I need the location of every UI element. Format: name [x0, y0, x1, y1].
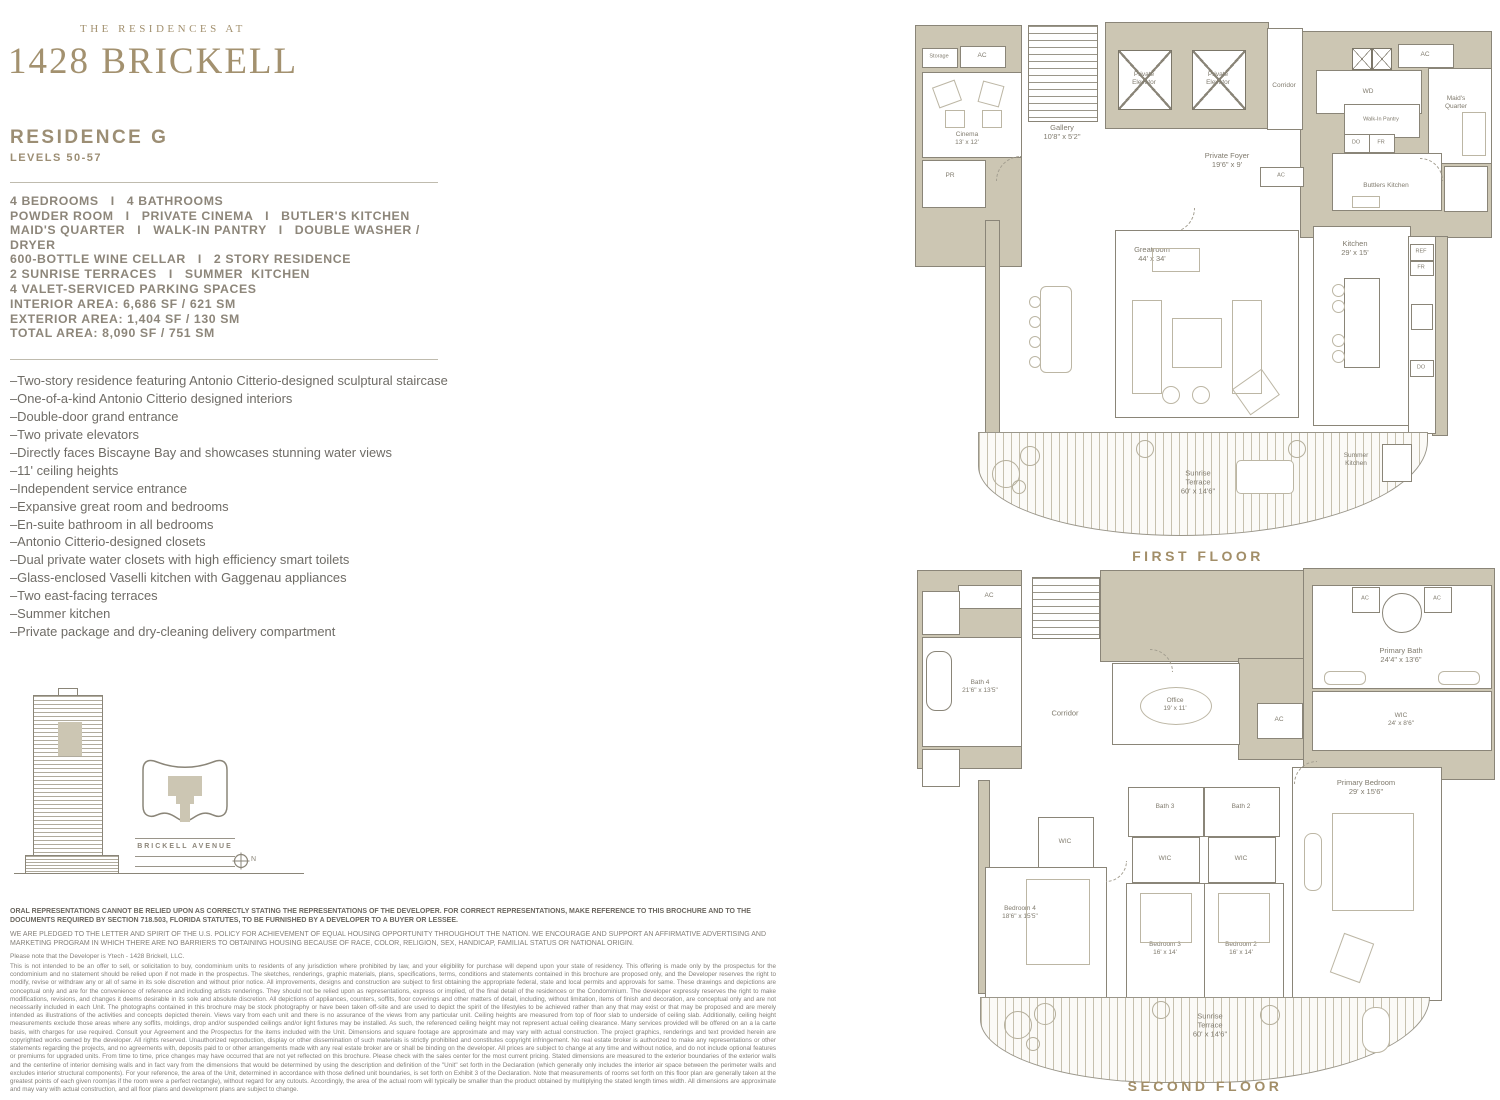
plant-icon — [1152, 1001, 1170, 1019]
label-terrace: Sunrise Terrace 60' x 14'6" — [1181, 469, 1215, 496]
room-powder — [922, 160, 986, 208]
building-podium — [25, 855, 119, 874]
label-terrace-2: Sunrise Terrace 60' x 14'6" — [1193, 1012, 1227, 1039]
site-key-plan — [135, 752, 235, 832]
disclaimer-fair-housing: WE ARE PLEDGED TO THE LETTER AND SPIRIT … — [10, 930, 776, 948]
sink-outline — [1324, 671, 1366, 685]
label-fr2: FR — [1417, 265, 1424, 272]
label-corridor: Corridor — [1051, 709, 1078, 718]
door-arc — [1294, 761, 1317, 784]
first-floor-plan: Storage AC Cinema 13' x 12' PR Gallery 1… — [900, 8, 1496, 564]
levels-subtitle: LEVELS 50-57 — [10, 152, 102, 164]
plant-icon — [1012, 480, 1026, 494]
street-line — [135, 838, 235, 839]
summary-line: POWDER ROOM I PRIVATE CINEMA I BUTLER'S … — [10, 209, 460, 224]
street-label: BRICKELL AVENUE — [135, 843, 235, 850]
stove-outline — [1352, 196, 1380, 208]
feature-item: –Antonio Citterio-designed closets — [10, 533, 462, 551]
outdoor-table-outline — [1236, 460, 1294, 494]
label-elevator-2: Private Elevator — [1206, 71, 1230, 87]
stool-outline — [1332, 334, 1345, 347]
plant-icon — [1288, 440, 1306, 458]
feature-item: –Double-door grand entrance — [10, 408, 462, 426]
label-wic-bedroom2: WIC — [1235, 855, 1248, 863]
staircase — [1028, 25, 1098, 122]
side-table-outline — [1192, 386, 1210, 404]
label-ac: AC — [984, 592, 993, 600]
label-bath2: Bath 2 — [1232, 803, 1251, 811]
plant-icon — [1136, 440, 1154, 458]
label-do2: DO — [1417, 365, 1425, 372]
door-arc — [1106, 861, 1127, 882]
label-bath4: Bath 4 21'6" x 13'5" — [962, 679, 998, 695]
feature-list: –Two-story residence featuring Antonio C… — [10, 372, 462, 641]
wall-block — [1100, 570, 1317, 662]
room-wc — [922, 591, 960, 635]
divider — [10, 182, 438, 183]
feature-item: –Dual private water closets with high ef… — [10, 551, 462, 569]
interior-area: INTERIOR AREA: 6,686 SF / 621 SM — [10, 297, 460, 312]
label-wic-bedroom3: WIC — [1159, 855, 1172, 863]
building-elevation — [33, 695, 103, 856]
bed-outline — [1218, 893, 1270, 943]
coffee-table-outline — [1172, 318, 1222, 368]
bed-outline — [1026, 879, 1090, 965]
label-ac: AC — [977, 52, 986, 60]
label-ac: AC — [1277, 173, 1285, 180]
area-summary: INTERIOR AREA: 6,686 SF / 621 SM EXTERIO… — [10, 297, 460, 341]
label-primary-bath: Primary Bath 24'4" x 13'6" — [1379, 646, 1422, 664]
feature-item: –Private package and dry-cleaning delive… — [10, 623, 462, 641]
staircase — [1032, 577, 1100, 639]
feature-item: –Two-story residence featuring Antonio C… — [10, 372, 462, 390]
feature-item: –Glass-enclosed Vaselli kitchen with Gag… — [10, 569, 462, 587]
disclaimer-body: This is not intended to be an offer to s… — [10, 963, 776, 1095]
tub-outline — [926, 651, 952, 711]
summary-line: 4 BEDROOMS I 4 BATHROOMS — [10, 194, 460, 209]
label-kitchen: Kitchen 29' x 15' — [1341, 239, 1368, 257]
label-summer-kitchen: Summer Kitchen — [1344, 452, 1369, 468]
label-gallery: Gallery 10'8" x 5'2" — [1044, 123, 1081, 141]
label-office: Office 19' x 11' — [1163, 697, 1186, 713]
disclaimer-oral: ORAL REPRESENTATIONS CANNOT BE RELIED UP… — [10, 907, 776, 925]
chair-outline — [1029, 316, 1041, 328]
feature-item: –Two east-facing terraces — [10, 587, 462, 605]
label-cinema: Cinema 13' x 12' — [955, 131, 979, 147]
bed-outline — [1332, 813, 1414, 911]
stool-outline — [1332, 350, 1345, 363]
furniture-outline — [982, 110, 1002, 128]
label-pantry: Walk-In Pantry — [1363, 117, 1399, 124]
room-bath3 — [1128, 787, 1204, 837]
feature-item: –Directly faces Biscayne Bay and showcas… — [10, 444, 462, 462]
label-ac: AC — [1361, 596, 1369, 603]
chair-outline — [1029, 356, 1041, 368]
feature-item: –Independent service entrance — [10, 480, 462, 498]
room-wc — [922, 749, 960, 787]
plant-icon — [1004, 1011, 1032, 1039]
label-do: DO — [1352, 140, 1360, 147]
ground-line — [14, 873, 304, 874]
room-maids-bath — [1444, 166, 1488, 212]
exterior-area: EXTERIOR AREA: 1,404 SF / 130 SM — [10, 312, 460, 327]
label-laundry: WD — [1363, 88, 1374, 96]
room-bath2 — [1204, 787, 1280, 837]
stool-outline — [1332, 300, 1345, 313]
label-ac: AC — [1420, 51, 1429, 59]
label-bedroom2: Bedroom 2 16' x 14' — [1225, 941, 1257, 957]
dryer-icon — [1372, 48, 1392, 70]
feature-item: –11' ceiling heights — [10, 462, 462, 480]
label-bath3: Bath 3 — [1156, 803, 1175, 811]
plant-icon — [1034, 1003, 1056, 1025]
label-bedroom3: Bedroom 3 16' x 14' — [1149, 941, 1181, 957]
label-ref: REF — [1416, 249, 1427, 256]
residence-summary: 4 BEDROOMS I 4 BATHROOMS POWDER ROOM I P… — [10, 194, 460, 296]
plant-icon — [1260, 1005, 1280, 1025]
plant-icon — [1026, 1037, 1040, 1051]
room-corridor — [1267, 28, 1303, 130]
label-butlers-kitchen: Buttlers Kitchen — [1363, 182, 1409, 190]
wall-block — [985, 220, 1000, 436]
oven-outline — [1411, 304, 1433, 330]
console-outline — [1152, 248, 1200, 272]
residence-highlight — [58, 722, 82, 756]
label-private-foyer: Private Foyer 19'6" x 9' — [1205, 151, 1250, 169]
bed-outline — [1140, 893, 1192, 943]
compass-north-label: N — [251, 856, 256, 863]
disclaimer-developer: Please note that the Developer is Ytech … — [10, 953, 776, 961]
side-table-outline — [1162, 386, 1180, 404]
bed-outline — [1462, 112, 1486, 156]
summary-line: MAID'S QUARTER I WALK-IN PANTRY I DOUBLE… — [10, 223, 460, 252]
label-ac: AC — [1274, 716, 1283, 724]
label-ac: AC — [1433, 596, 1441, 603]
label-primary-bedroom: Primary Bedroom 29' x 15'6" — [1337, 778, 1395, 796]
summer-kitchen-cabinet — [1382, 444, 1412, 482]
chair-outline — [1029, 296, 1041, 308]
feature-item: –Two private elevators — [10, 426, 462, 444]
second-floor-caption: SECOND FLOOR — [1065, 1078, 1345, 1094]
label-maids-quarter: Maid's Quarter — [1445, 95, 1467, 111]
label-primary-wic: WIC 24' x 8'6" — [1388, 712, 1414, 728]
washer-icon — [1352, 48, 1372, 70]
stool-outline — [1332, 284, 1345, 297]
summary-line: 4 VALET-SERVICED PARKING SPACES — [10, 282, 460, 297]
brand-eyebrow: THE RESIDENCES AT — [80, 23, 246, 35]
island-outline — [1344, 278, 1380, 368]
summary-line: 600-BOTTLE WINE CELLAR I 2 STORY RESIDEN… — [10, 252, 460, 267]
feature-item: –Expansive great room and bedrooms — [10, 498, 462, 516]
label-wic-bedroom4: WIC — [1059, 838, 1072, 846]
total-area: TOTAL AREA: 8,090 SF / 751 SM — [10, 326, 460, 341]
summary-line: 2 SUNRISE TERRACES I SUMMER KITCHEN — [10, 267, 460, 282]
furniture-outline — [945, 110, 965, 128]
bench-outline — [1304, 833, 1322, 891]
sink-outline — [1438, 671, 1480, 685]
shower-outline — [1382, 593, 1422, 633]
plant-icon — [1020, 446, 1040, 466]
street-line — [135, 856, 235, 857]
brochure-page: { "colors": {"brand": "#a3916f", "wall":… — [0, 0, 1500, 1098]
label-powder: PR — [945, 172, 954, 180]
page-title: RESIDENCE G — [10, 127, 168, 149]
spa-outline — [1362, 1007, 1390, 1053]
label-elevator-1: Private Elevator — [1132, 71, 1156, 87]
chair-outline — [1029, 336, 1041, 348]
first-floor-caption: FIRST FLOOR — [1058, 548, 1338, 564]
label-fr: FR — [1377, 140, 1384, 147]
feature-item: –Summer kitchen — [10, 605, 462, 623]
sofa-outline — [1132, 300, 1162, 394]
second-floor-plan: AC Bath 4 21'6" x 13'5" Corridor Office … — [900, 565, 1496, 1098]
divider — [10, 359, 438, 360]
street-line — [135, 866, 235, 867]
dining-table-outline — [1040, 286, 1072, 373]
label-storage: Storage — [929, 54, 948, 61]
feature-item: –En-suite bathroom in all bedrooms — [10, 516, 462, 534]
legal-disclaimer: ORAL REPRESENTATIONS CANNOT BE RELIED UP… — [10, 907, 776, 1100]
feature-item: –One-of-a-kind Antonio Citterio designed… — [10, 390, 462, 408]
brand-title: 1428 BRICKELL — [8, 40, 298, 83]
label-corridor: Corridor — [1272, 82, 1295, 90]
